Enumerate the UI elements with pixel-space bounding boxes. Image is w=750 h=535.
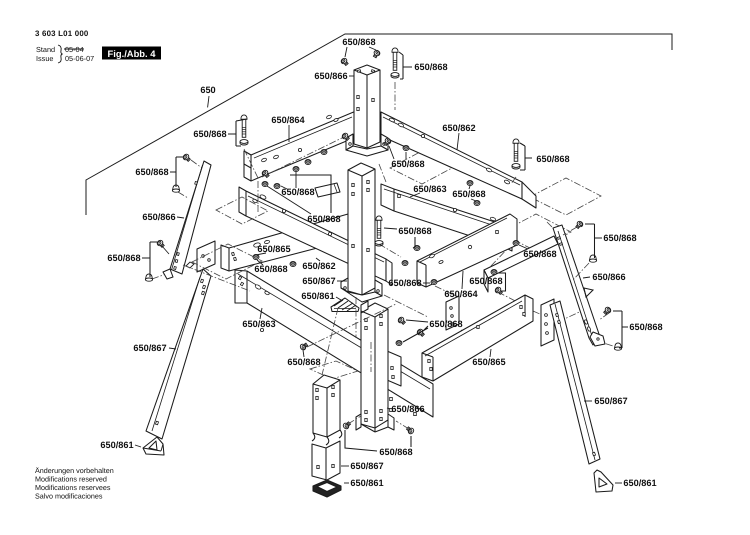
svg-text:650/862: 650/862: [302, 261, 335, 271]
svg-text:650/868: 650/868: [287, 357, 320, 367]
svg-text:Stand: Stand: [36, 45, 55, 54]
svg-text:650/866: 650/866: [592, 272, 625, 282]
svg-text:650/864: 650/864: [271, 115, 305, 125]
svg-text:650/864: 650/864: [444, 289, 478, 299]
svg-text:650/867: 650/867: [350, 461, 383, 471]
svg-text:650/868: 650/868: [523, 249, 556, 259]
svg-text:650/867: 650/867: [594, 396, 627, 406]
svg-text:650/868: 650/868: [603, 233, 636, 243]
svg-text:Issue: Issue: [36, 54, 53, 63]
svg-text:650/861: 650/861: [100, 440, 133, 450]
svg-text:650/868: 650/868: [536, 154, 569, 164]
svg-text:650/862: 650/862: [442, 123, 475, 133]
svg-text:650/863: 650/863: [413, 184, 446, 194]
svg-text:Salvo modificaciones: Salvo modificaciones: [35, 492, 103, 501]
svg-text:650/861: 650/861: [301, 291, 334, 301]
svg-text:650/868: 650/868: [107, 253, 140, 263]
svg-text:650/868: 650/868: [135, 167, 168, 177]
svg-text:650/868: 650/868: [193, 129, 226, 139]
svg-text:650/866: 650/866: [142, 212, 175, 222]
svg-text:650/868: 650/868: [307, 214, 340, 224]
svg-text:650/868: 650/868: [469, 276, 502, 286]
svg-text:05-06-07: 05-06-07: [65, 54, 94, 63]
svg-text:650/866: 650/866: [314, 71, 347, 81]
svg-text:650/868: 650/868: [342, 37, 375, 47]
svg-text:650/868: 650/868: [379, 447, 412, 457]
svg-text:05-04: 05-04: [65, 45, 84, 54]
svg-text:650/868: 650/868: [398, 226, 431, 236]
svg-text:650/867: 650/867: [133, 343, 166, 353]
svg-text:650/867: 650/867: [302, 276, 335, 286]
svg-text:650/868: 650/868: [629, 322, 662, 332]
svg-text:650/863: 650/863: [242, 319, 275, 329]
svg-text:650/868: 650/868: [452, 189, 485, 199]
svg-text:650/861: 650/861: [623, 478, 656, 488]
svg-text:650: 650: [200, 85, 215, 95]
svg-text:650/868: 650/868: [414, 62, 447, 72]
svg-text:650/861: 650/861: [350, 478, 383, 488]
svg-text:650/868: 650/868: [429, 319, 462, 329]
svg-text:650/868: 650/868: [388, 278, 421, 288]
svg-text:650/865: 650/865: [472, 357, 505, 367]
svg-text:650/866: 650/866: [391, 404, 424, 414]
svg-text:Fig./Abb. 4: Fig./Abb. 4: [108, 48, 157, 59]
svg-text:650/865: 650/865: [257, 244, 290, 254]
svg-text:650/868: 650/868: [254, 264, 287, 274]
svg-text:3 603 L01 000: 3 603 L01 000: [35, 29, 89, 38]
svg-text:650/868: 650/868: [391, 159, 424, 169]
